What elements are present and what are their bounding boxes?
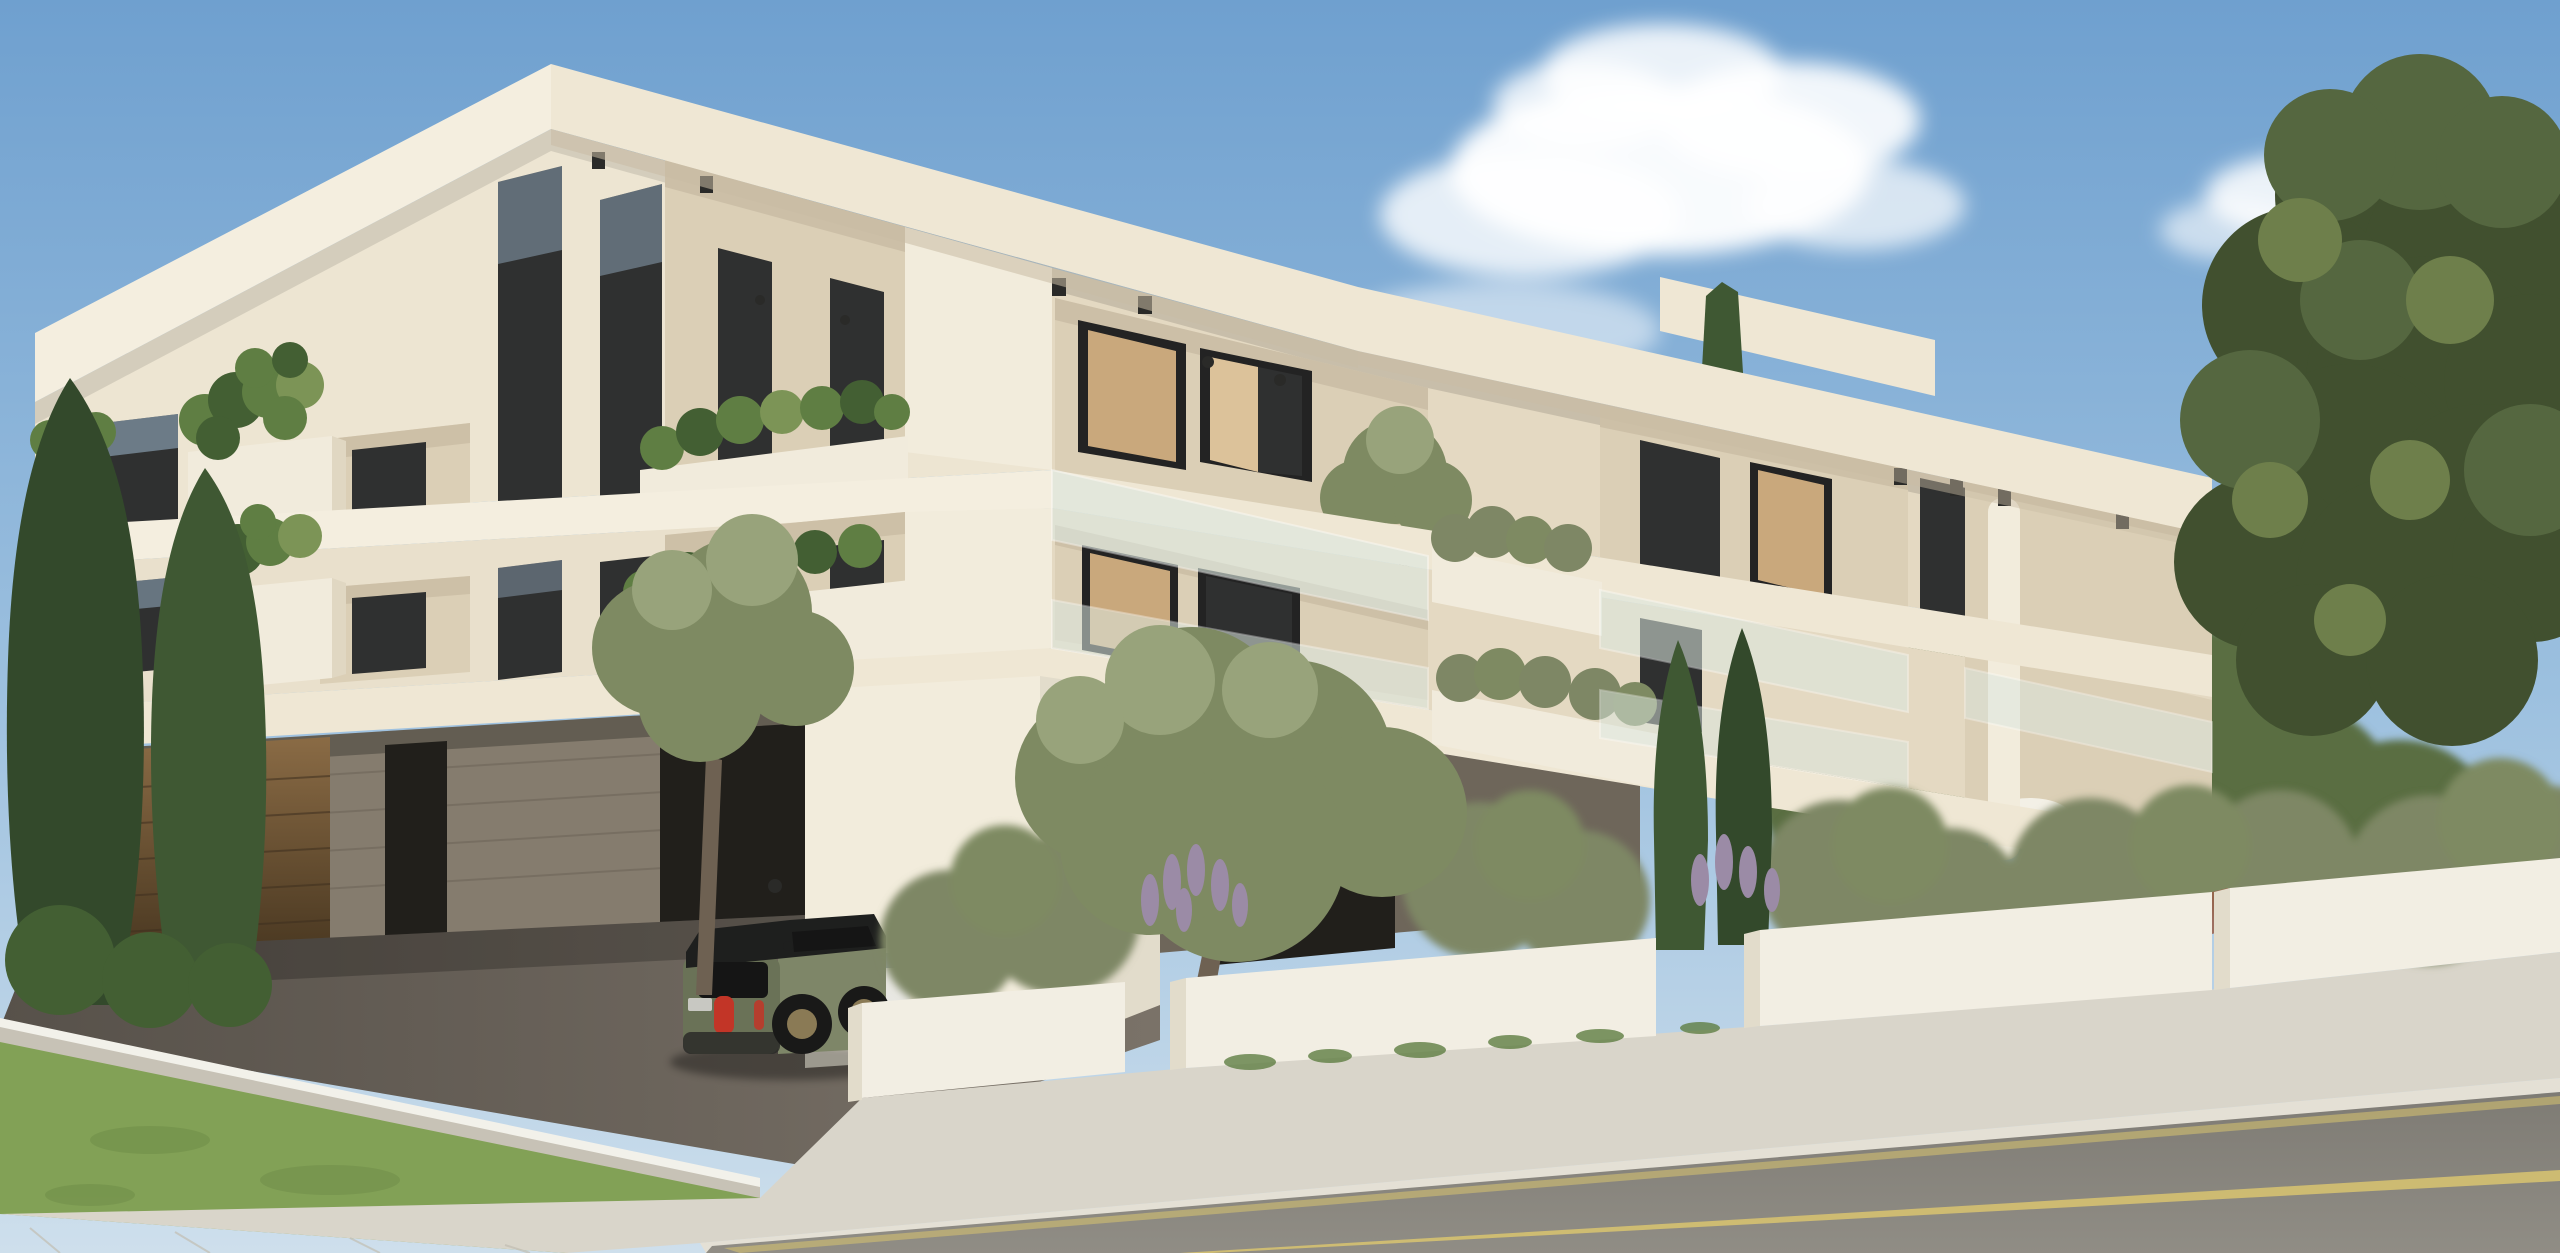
downlight (840, 315, 850, 325)
curtain-door-2 (1200, 348, 1312, 482)
scene-canvas (0, 0, 2560, 1253)
curtain-door-3 (1750, 462, 1832, 602)
mini-taillight-2 (754, 1000, 764, 1030)
recess-window (352, 592, 426, 674)
garage-ceiling-light (768, 879, 782, 893)
lower-corner-pier (905, 508, 1052, 668)
downlight (755, 295, 765, 305)
balcony-door (830, 278, 884, 466)
mini-bumper (683, 1032, 780, 1054)
downlight (1202, 356, 1214, 368)
mini-license-plate (688, 998, 712, 1011)
mini-taillight (714, 996, 734, 1034)
mini-mirror (783, 941, 793, 951)
balcony-door (718, 248, 772, 480)
upper-left-tall-window-1 (498, 166, 562, 534)
mini-rear-rim (787, 1009, 817, 1039)
rendered-photo (0, 0, 2560, 1253)
downlight (1274, 374, 1286, 386)
curtain-door-1 (1078, 320, 1186, 470)
lower-left-tall-window-1 (498, 560, 562, 680)
